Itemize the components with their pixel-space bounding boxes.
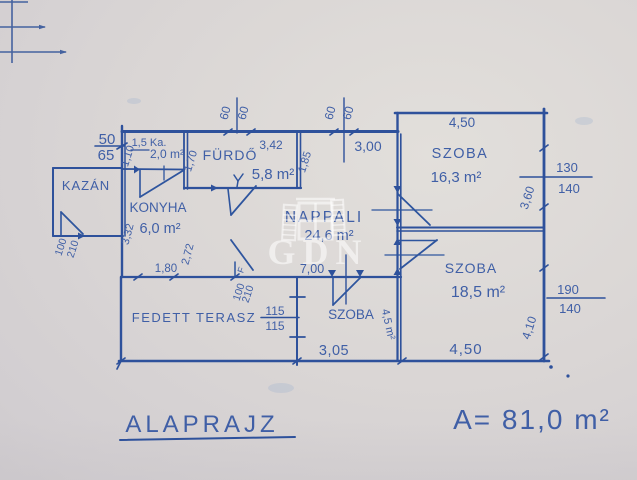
svg-text:FEDETT TERASZ: FEDETT TERASZ (132, 310, 256, 325)
svg-text:FÜRDŐ: FÜRDŐ (203, 146, 258, 163)
svg-text:115: 115 (265, 319, 284, 333)
svg-text:190: 190 (557, 282, 579, 297)
svg-text:KAZÁN: KAZÁN (62, 178, 110, 193)
svg-text:ALAPRAJZ: ALAPRAJZ (125, 411, 278, 438)
svg-text:140: 140 (559, 301, 581, 316)
svg-text:3,42: 3,42 (259, 138, 283, 152)
svg-text:130: 130 (556, 160, 578, 175)
svg-text:115: 115 (265, 304, 284, 318)
svg-text:50: 50 (99, 131, 116, 148)
svg-text:4,50: 4,50 (449, 115, 475, 130)
svg-text:A= 81,0 m²: A= 81,0 m² (453, 404, 611, 435)
svg-text:5,8 m²: 5,8 m² (252, 166, 295, 183)
svg-text:1,80: 1,80 (155, 263, 177, 275)
svg-text:16,3 m²: 16,3 m² (431, 169, 482, 186)
svg-text:3,00: 3,00 (354, 138, 381, 154)
svg-text:SZOBA: SZOBA (328, 307, 374, 322)
svg-text:65: 65 (98, 147, 115, 164)
svg-text:4,50: 4,50 (449, 341, 482, 358)
svg-text:SZOBA: SZOBA (445, 260, 497, 276)
svg-text:6,0 m²: 6,0 m² (139, 221, 180, 237)
svg-text:SZOBA: SZOBA (432, 146, 489, 162)
svg-text:KONYHA: KONYHA (129, 200, 186, 215)
svg-text:2,0 m²: 2,0 m² (150, 147, 184, 161)
svg-text:18,5 m²: 18,5 m² (451, 284, 506, 301)
svg-text:GDN: GDN (268, 232, 369, 272)
svg-text:3,05: 3,05 (319, 343, 349, 359)
svg-text:140: 140 (558, 181, 580, 196)
